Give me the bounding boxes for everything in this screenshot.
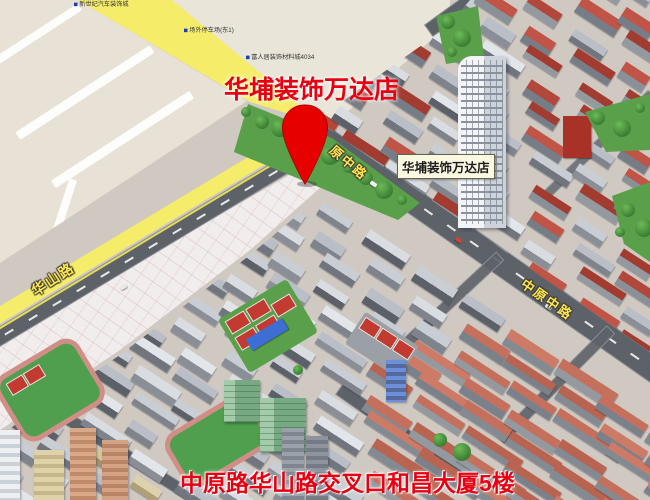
poi-dot-icon [74,3,78,7]
land-poi-label: 新世纪汽车装饰城 [74,0,129,9]
map-canvas[interactable]: 新世纪汽车装饰城 场外停车场(东1) 富人居装饰材料城4034 华山路 原中路 … [0,0,650,500]
store-label-box[interactable]: 华埔装饰万达店 [397,154,495,179]
tower-building [458,56,506,228]
land-poi-label: 场外停车场(东1) [184,26,234,35]
tree-icon [441,15,455,29]
poi-dot-icon [184,29,188,33]
poi-dot-icon [246,56,250,60]
address-caption: 中原路华山路交叉口和昌大厦5楼 [180,464,515,498]
tree-icon [615,227,625,237]
tree-icon [635,103,645,113]
tree-icon [635,219,650,237]
tree-icon [397,195,407,205]
tree-icon [241,107,251,117]
land-poi-label: 富人居装饰材料城4034 [246,53,314,62]
tree-icon [447,47,457,57]
tree-icon [453,29,471,47]
tree-icon [375,181,393,199]
tree-icon [293,365,303,375]
tree-icon [453,443,471,461]
tree-icon [613,119,631,137]
tree-icon [591,111,605,125]
store-title: 华埔装饰万达店 [224,70,399,106]
tree-icon [621,203,635,217]
location-pin[interactable] [281,104,329,188]
tree-icon [255,115,269,129]
tree-icon [433,433,447,447]
